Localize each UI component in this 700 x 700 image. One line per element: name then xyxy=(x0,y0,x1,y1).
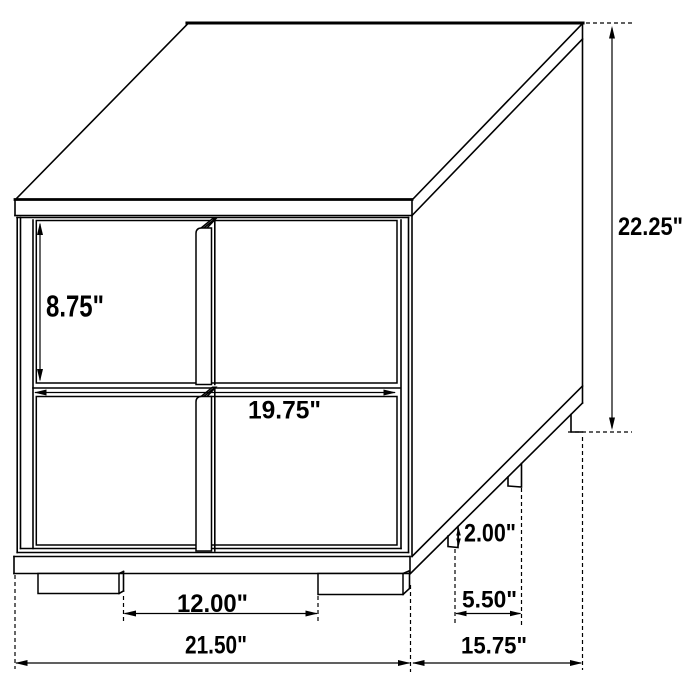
dim-overall-depth-arrow-left xyxy=(412,660,425,666)
dim-overall-height-label: 22.25" xyxy=(618,213,683,241)
dim-drawer-width-label: 19.75" xyxy=(248,397,321,425)
dim-overall-width-label: 21.50" xyxy=(185,632,247,660)
top-handle-bar xyxy=(196,228,212,385)
dim-overall-depth-label: 15.75" xyxy=(461,633,527,660)
top-left-receding-edge xyxy=(15,24,188,201)
dim-side-leg-spacing-label: 5.50" xyxy=(462,587,517,614)
plinth-base xyxy=(14,557,410,574)
top-right-receding-edge xyxy=(412,24,583,201)
bottom-handle-bar xyxy=(196,397,212,552)
top-slab-bottom-receding-edge xyxy=(412,39,583,216)
front-left-leg-face xyxy=(38,574,119,594)
front-right-leg xyxy=(318,571,410,595)
dim-leg-height: 2.00" xyxy=(456,520,516,548)
nightstand-dimension-diagram: 8.75" 19.75" 22.25" 2.00" 12.00" xyxy=(0,0,700,700)
dim-overall-width-arrow-left xyxy=(15,660,28,666)
side-back-leg xyxy=(571,415,583,433)
dim-overall-height-arrow-down xyxy=(609,418,615,431)
dim-leg-height-label: 2.00" xyxy=(464,520,516,548)
front-right-leg-bevel-bottom xyxy=(403,589,410,595)
side-front-leg xyxy=(448,527,458,548)
dim-front-leg-spacing-arrow-right xyxy=(306,611,319,617)
dim-leg-height-arrow-up xyxy=(456,528,461,536)
dim-overall-width-arrow-right xyxy=(398,660,411,666)
side-panel xyxy=(411,24,583,574)
front-right-leg-face xyxy=(318,574,403,595)
side-plinth-bottom-edge xyxy=(411,403,583,574)
dim-drawer-width-arrow-left xyxy=(34,390,47,396)
dim-overall-depth-arrow-right xyxy=(570,660,583,666)
dim-side-leg-spacing: 5.50" xyxy=(455,488,522,627)
dim-overall-height-arrow-up xyxy=(609,26,615,39)
front-left-leg xyxy=(38,572,124,594)
dim-drawer-height-label: 8.75" xyxy=(46,289,104,324)
drawers xyxy=(36,221,397,546)
dim-overall-height: 22.25" xyxy=(568,23,683,432)
dim-leg-height-arrow-down xyxy=(456,539,461,547)
dim-front-leg-spacing-arrow-left xyxy=(124,611,137,617)
dim-drawer-width-arrow-right xyxy=(384,390,397,396)
bottom-drawer-front xyxy=(36,397,397,546)
diagram-canvas: 8.75" 19.75" 22.25" 2.00" 12.00" xyxy=(0,0,700,700)
dim-front-leg-spacing: 12.00" xyxy=(124,590,319,623)
dim-front-leg-spacing-label: 12.00" xyxy=(177,590,248,618)
top-panel xyxy=(15,23,583,216)
